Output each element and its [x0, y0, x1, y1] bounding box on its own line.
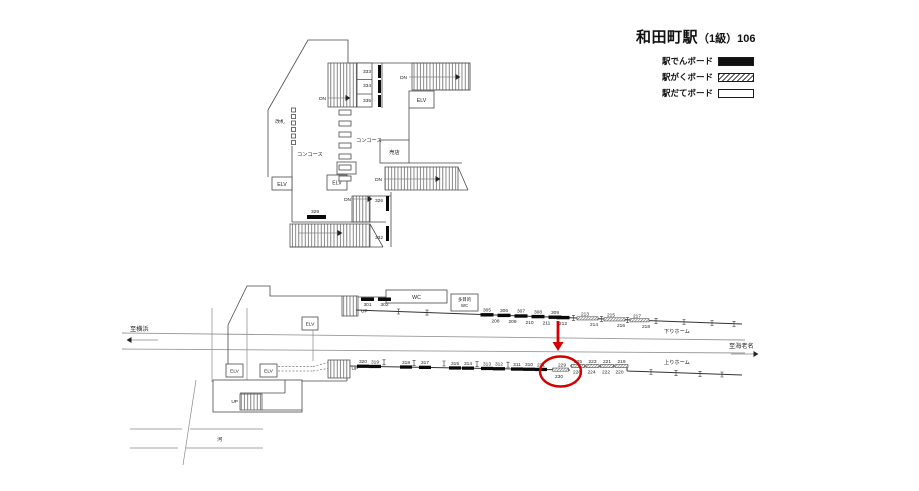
overpass-outline	[228, 286, 342, 325]
board-219-label: 219	[617, 359, 625, 365]
board-211-label: 211	[543, 320, 551, 326]
down-platform-label: 下りホーム	[664, 328, 690, 335]
board-224-label: 224	[587, 370, 595, 376]
board-333-label: 333	[363, 69, 371, 75]
board-215-label: 215	[607, 312, 615, 318]
up-platform-boards: 320 319 318 317 315 314 313 312 311 310 …	[357, 359, 628, 380]
track-upper	[122, 333, 745, 340]
dn-label-lower-center: DN	[344, 197, 351, 203]
board-305-bar	[481, 313, 494, 316]
board-218-label: 218	[642, 324, 650, 330]
stair-lower-left	[290, 224, 370, 247]
board-326-label: 326	[375, 198, 383, 204]
board-217-label: 217	[633, 313, 641, 319]
ticket-gate-label: 改札	[275, 118, 285, 125]
stair-south-exit	[240, 394, 262, 410]
wc-label: WC	[412, 295, 421, 301]
board-310-label: 310	[525, 362, 533, 368]
board-308-bar	[532, 315, 545, 318]
board-317-label: 317	[421, 360, 429, 366]
board-308-label: 308	[534, 309, 542, 315]
board-307-label: 307	[517, 309, 525, 315]
board-318-label: 318	[402, 360, 410, 366]
board-216-label: 216	[617, 323, 625, 329]
board-305-label: 305	[483, 308, 491, 314]
ticket-gates	[292, 108, 296, 145]
stair-down-platform	[342, 296, 358, 316]
board-307-bar	[515, 314, 528, 317]
board-220-label: 220	[615, 370, 623, 376]
board-212-bar	[557, 316, 570, 319]
shop-label: 売店	[389, 148, 399, 156]
board-319-label: 319	[371, 359, 379, 365]
dn-label-mid-right: DN	[375, 177, 382, 183]
concourse-plan: DN DN DN DN 333 334 335 ELV ELV ELV	[268, 40, 470, 297]
board-320-label: 320	[359, 359, 367, 365]
board-209-label: 209	[508, 319, 516, 325]
stair-upper-left	[328, 63, 357, 107]
elv-up-a-label: ELV	[230, 369, 240, 375]
stair-upper-right	[412, 63, 470, 90]
board-315-label: 315	[451, 361, 459, 367]
board-222-label: 222	[602, 370, 610, 376]
board-312-label: 312	[495, 362, 503, 368]
up-label-down-stair: UP	[361, 309, 368, 315]
board-223-label: 223	[588, 359, 596, 365]
multi-wc-label-2: WC	[461, 303, 468, 308]
board-213-label: 213	[581, 311, 589, 317]
board-221-label: 221	[603, 359, 611, 365]
board-335-label: 335	[363, 98, 371, 104]
board-229-label: 229	[558, 363, 566, 369]
board-301-bar	[361, 298, 374, 302]
stair-lower-center	[352, 196, 370, 222]
stair-up-platform	[328, 360, 350, 378]
elv-up-b-label: ELV	[264, 369, 274, 375]
board-311-label: 311	[513, 362, 521, 368]
board-302-bar	[378, 298, 391, 302]
dn-label-upper-right: DN	[400, 75, 407, 81]
multi-wc-label-1: 多目的	[458, 296, 472, 303]
board-212-label: 212	[559, 321, 567, 327]
elv-top-label: ELV	[417, 98, 427, 104]
up-label-south-exit: UP	[231, 399, 238, 405]
board-230-label: 230	[555, 374, 563, 380]
platform-plan: 河 至横浜 至海老名 ELV ELV ELV UP UP	[122, 286, 758, 465]
river-label: 河	[217, 435, 222, 443]
board-309-label: 309	[551, 310, 559, 316]
board-210-label: 210	[525, 320, 533, 326]
elv-down-platform-label: ELV	[306, 322, 316, 328]
stair-mid-right	[385, 167, 458, 190]
board-208-label: 208	[491, 319, 499, 325]
board-333-bar	[378, 65, 381, 78]
board-313-label: 313	[483, 361, 491, 367]
board-334-bar	[378, 80, 381, 93]
board-214-label: 214	[590, 322, 598, 328]
board-302-label: 302	[380, 302, 388, 308]
board-326-bar	[386, 196, 389, 211]
river-lines	[130, 429, 263, 448]
to-yokohama-label: 至横浜	[130, 325, 149, 333]
board-334-label: 334	[363, 83, 371, 89]
board-329-bar	[307, 215, 326, 219]
ticket-machines	[339, 110, 351, 181]
board-306-bar	[498, 314, 511, 317]
elv-left-label: ELV	[277, 182, 287, 188]
board-329-label: 329	[311, 209, 319, 215]
board-301-label: 301	[363, 302, 371, 308]
board-314-label: 314	[464, 361, 472, 367]
stair-mid-right-end	[458, 167, 468, 190]
board-335-bar	[378, 95, 381, 107]
dn-label-upper-left: DN	[319, 96, 326, 102]
concourse-label-b: コンコース	[356, 137, 382, 144]
up-platform-label: 上りホーム	[664, 358, 690, 366]
to-ebina-label: 至海老名	[729, 342, 754, 350]
concourse-label-a: コンコース	[297, 151, 323, 158]
board-332-label: 332	[375, 235, 383, 241]
station-board-map: 和田町駅（1級）106 駅でんボード 駅がくボード 駅だてボード	[0, 0, 919, 491]
red-arrow-head	[553, 342, 564, 351]
passage-dashed-lines	[278, 363, 328, 372]
board-306-label: 306	[500, 308, 508, 314]
track-lower	[122, 349, 745, 353]
station-diagram: DN DN DN DN 333 334 335 ELV ELV ELV	[0, 0, 919, 491]
board-332-bar	[386, 226, 389, 241]
